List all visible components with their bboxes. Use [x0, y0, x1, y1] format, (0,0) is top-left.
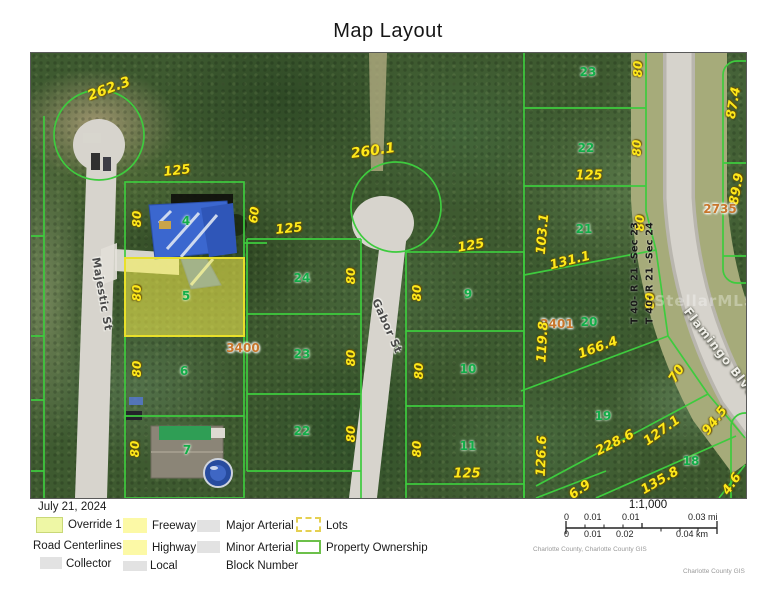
legend-label-freeway: Freeway	[152, 520, 196, 532]
legend-label-collector: Collector	[66, 558, 111, 570]
parcel-number-label: 20	[581, 315, 598, 329]
map-canvas: 262.3125806048053400806807260.1125248023…	[30, 52, 747, 499]
dimension-label: 125	[453, 467, 480, 482]
legend-label-local: Local	[150, 560, 178, 572]
legend-label-lots: Lots	[326, 520, 348, 532]
parcel-number-label: 5	[182, 289, 190, 303]
dimension-label: 119.8	[534, 321, 551, 363]
dimension-label: 60	[246, 206, 262, 224]
parcel-number-label: 23	[294, 347, 311, 361]
dimension-label: 125	[575, 169, 602, 184]
attribution-left: Charlotte County, Charlotte County GIS	[533, 546, 647, 553]
attribution-right: Charlotte County GIS	[683, 568, 745, 575]
dimension-label: 80	[631, 61, 645, 78]
dimension-label: 80	[410, 441, 424, 458]
legend-swatch-major-arterial	[197, 520, 220, 532]
parcel-number-label: 21	[576, 222, 593, 236]
dimension-label: 80	[128, 441, 142, 458]
parcel-number-label: 23	[580, 65, 597, 79]
dimension-label: 80	[412, 363, 426, 380]
scale-ratio: 1:1,000	[558, 499, 738, 511]
parcel-number-label: 11	[460, 439, 477, 453]
parcel-number-label: 18	[683, 454, 700, 468]
scale-bar-group: 1:1,000 00.010.010.03 mi 00.010.020.04 k…	[558, 499, 748, 551]
parcel-number-label: 24	[294, 271, 311, 285]
parcel-number-label: 19	[595, 409, 612, 423]
legend-swatch-lots	[296, 517, 321, 532]
parcel-number-label: 9	[464, 287, 472, 301]
parcel-number-label: 6	[180, 364, 188, 378]
dimension-label: 126.6	[534, 435, 550, 477]
legend-label-minor-arterial: Minor Arterial	[226, 542, 294, 554]
legend-heading-road-centerlines: Road Centerlines	[33, 540, 122, 552]
dimension-label: 80	[344, 426, 358, 443]
legend-swatch-collector	[40, 557, 62, 569]
legend-label-override-1: Override 1	[68, 519, 122, 531]
legend-swatch-override-1	[36, 517, 63, 533]
legend-swatch-property-ownership	[296, 540, 321, 554]
parcel-number-label: 7	[183, 443, 191, 457]
legend-swatch-minor-arterial	[197, 541, 220, 553]
dimension-label: 80	[630, 140, 644, 157]
dimension-label: 80	[344, 350, 358, 367]
dimension-label: 125	[275, 220, 304, 238]
dimension-label: 125	[163, 162, 192, 180]
dimension-label: 80	[410, 285, 424, 302]
legend-swatch-freeway	[123, 518, 147, 533]
scale-tick-label: 0.04 km	[676, 529, 708, 539]
section-township-label: T 40- R 21 -Sec 23	[630, 222, 641, 324]
parcel-number-label: 4	[182, 214, 190, 228]
dimension-label: 80	[130, 285, 144, 302]
dimension-label: 80	[130, 361, 144, 378]
watermark: StellarMLS	[654, 292, 747, 310]
legend-label-highway: Highway	[152, 542, 196, 554]
legend-label-property-ownership: Property Ownership	[326, 542, 428, 554]
block-number-label: 2735	[703, 202, 736, 216]
legend-swatch-local	[123, 561, 147, 571]
scale-tick-label: 0	[564, 529, 569, 539]
map-date: July 21, 2024	[38, 501, 106, 513]
parcel-number-label: 10	[460, 362, 477, 376]
dimension-label: 80	[130, 211, 144, 228]
map-layout-page: Map Layout	[0, 0, 776, 600]
legend-label-major-arterial: Major Arterial	[226, 520, 294, 532]
parcel-number-label: 22	[294, 424, 311, 438]
legend-label-block-number: Block Number	[226, 560, 298, 572]
page-title: Map Layout	[0, 20, 776, 43]
parcel-number-label: 22	[578, 141, 595, 155]
legend-swatch-highway	[123, 540, 147, 555]
dimension-label: 80	[344, 268, 358, 285]
scale-tick-label: 0.01	[584, 529, 602, 539]
block-number-label: 3400	[226, 341, 259, 355]
scale-km-labels: 00.010.020.04 km	[558, 529, 748, 539]
scale-tick-label: 0.02	[616, 529, 634, 539]
